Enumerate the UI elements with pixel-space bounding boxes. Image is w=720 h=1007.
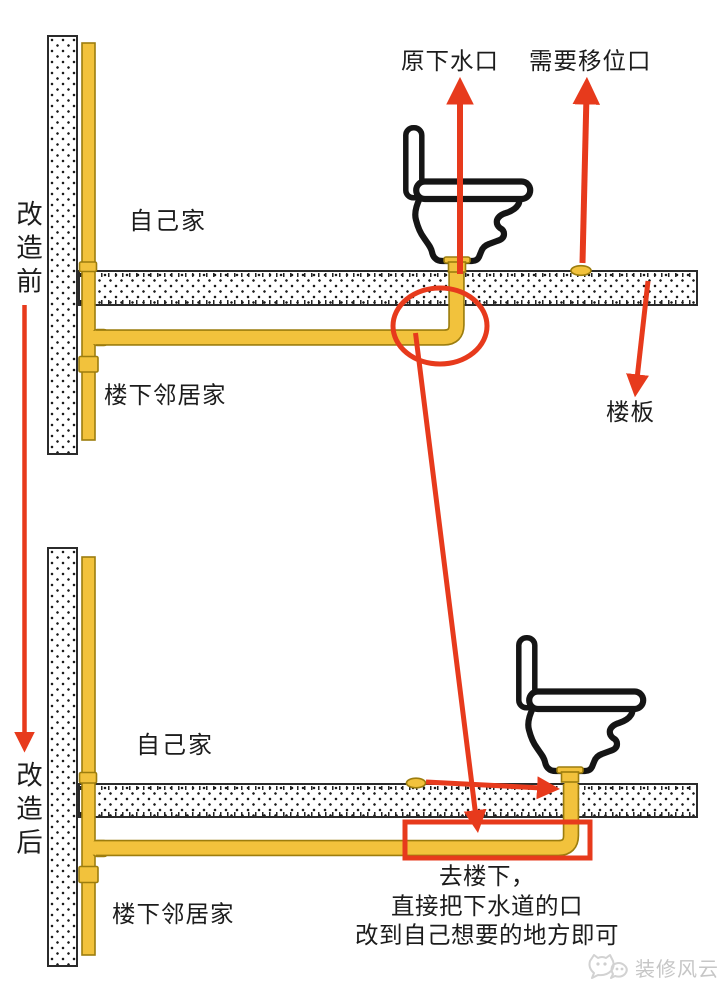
- soil-stack-upper: [82, 43, 95, 440]
- pipe-coupling-upper-small: [80, 262, 97, 272]
- highlight-circle-elbow: [393, 288, 487, 364]
- caption-block: 去楼下， 直接把下水道的口 改到自己想要的地方即可: [337, 862, 637, 951]
- toilet-after: [519, 638, 643, 782]
- branch-pipe-after: [92, 781, 571, 848]
- pipe-coupling-lower-small: [80, 773, 97, 784]
- caption-line-1: 去楼下，: [337, 862, 637, 892]
- branch-pipe-after-outline: [96, 784, 571, 848]
- caption-line-3: 改到自己想要的地方即可: [337, 921, 637, 951]
- toilet-before: [406, 128, 530, 272]
- watermark: 装修风云: [586, 951, 719, 983]
- watermark-text: 装修风云: [635, 953, 719, 982]
- label-original-drain: 原下水口: [401, 42, 499, 76]
- label-section-before: 改造前: [8, 200, 47, 301]
- label-floor-slab: 楼板: [606, 393, 655, 427]
- arrow-new-drain-horizontal: [426, 782, 542, 788]
- relocation-port-oval: [571, 266, 591, 276]
- caption-line-2: 直接把下水道的口: [337, 892, 637, 922]
- label-own-home-after: 自己家: [136, 725, 214, 760]
- arrow-floor-slab: [637, 281, 648, 379]
- label-neighbor-after: 楼下邻居家: [112, 895, 235, 929]
- label-section-after: 改造后: [8, 761, 47, 862]
- diagram-overlay: [0, 0, 720, 1007]
- pipe-coupling-upper-large: [79, 357, 98, 373]
- label-neighbor-before: 楼下邻居家: [104, 376, 227, 410]
- arrow-relocation-port: [583, 99, 587, 263]
- arrow-reroute-diagonal: [416, 333, 476, 815]
- abandoned-port-oval: [407, 778, 426, 788]
- diagram-canvas: 原下水口 需要移位口 楼板 自己家 楼下邻居家 自己家 楼下邻居家 改造前 改造…: [0, 0, 720, 1007]
- pipe-coupling-lower-large: [79, 867, 98, 883]
- chat-bubbles-logo-icon: [586, 951, 632, 983]
- label-own-home-before: 自己家: [129, 201, 207, 236]
- soil-stack-lower: [82, 557, 95, 955]
- label-relocation-port: 需要移位口: [529, 42, 652, 76]
